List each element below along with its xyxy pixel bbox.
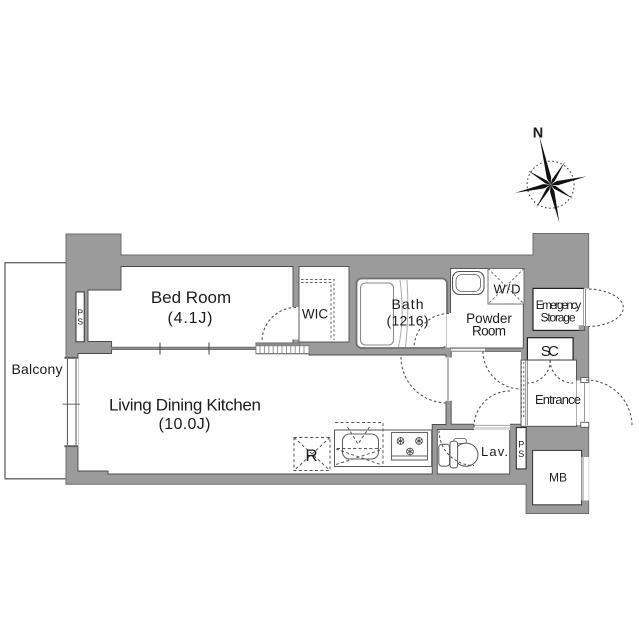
svg-text:Entrance: Entrance — [535, 392, 581, 407]
svg-text:Balcony: Balcony — [12, 361, 63, 377]
svg-text:SC: SC — [541, 343, 559, 360]
svg-text:Storage: Storage — [541, 311, 576, 325]
svg-text:W/D: W/D — [494, 282, 521, 297]
svg-text:S: S — [518, 449, 524, 459]
svg-text:Bed Room: Bed Room — [151, 288, 231, 307]
svg-text:S: S — [77, 317, 83, 327]
svg-text:MB: MB — [549, 471, 567, 485]
svg-text:(1216): (1216) — [387, 313, 429, 329]
svg-text:(10.0J): (10.0J) — [159, 416, 211, 433]
svg-text:(4.1J): (4.1J) — [168, 310, 213, 327]
svg-text:N: N — [533, 126, 543, 142]
svg-text:WIC: WIC — [302, 306, 328, 321]
svg-text:P: P — [518, 440, 524, 450]
svg-text:Emergency: Emergency — [536, 298, 582, 312]
svg-text:Room: Room — [472, 324, 506, 339]
svg-text:Lav.: Lav. — [481, 444, 508, 459]
svg-text:Bath: Bath — [392, 296, 424, 312]
svg-text:R: R — [305, 446, 317, 465]
svg-text:Living Dining Kitchen: Living Dining Kitchen — [109, 396, 261, 415]
